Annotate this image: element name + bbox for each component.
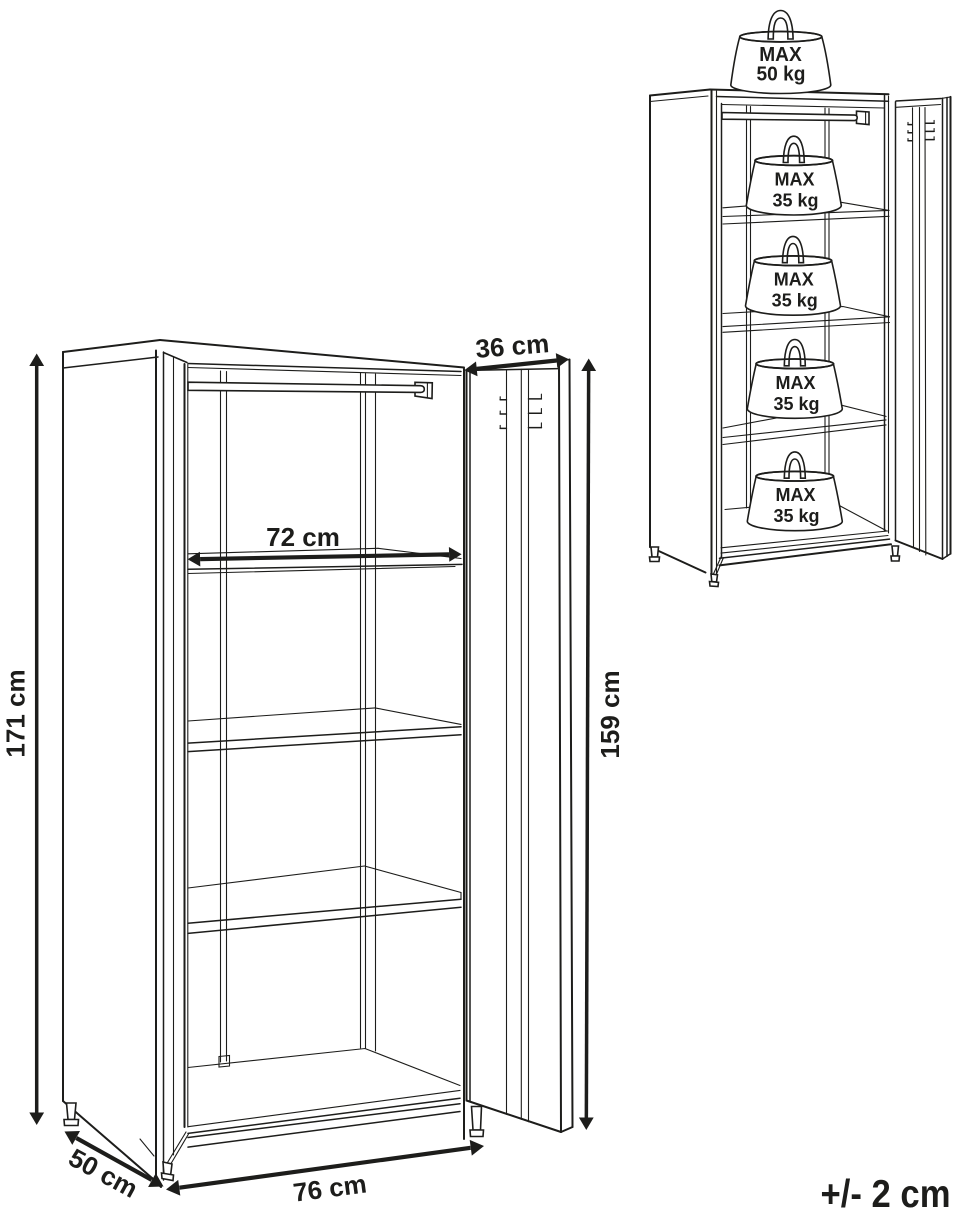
svg-text:159 cm: 159 cm <box>595 670 625 758</box>
svg-text:+/- 2 cm: +/- 2 cm <box>821 1173 951 1213</box>
svg-text:35 kg: 35 kg <box>772 191 818 211</box>
svg-text:171 cm: 171 cm <box>1 669 31 757</box>
svg-text:72 cm: 72 cm <box>266 522 340 552</box>
svg-text:36 cm: 36 cm <box>474 328 550 364</box>
svg-text:MAX: MAX <box>775 170 815 190</box>
svg-text:50 kg: 50 kg <box>757 64 806 86</box>
